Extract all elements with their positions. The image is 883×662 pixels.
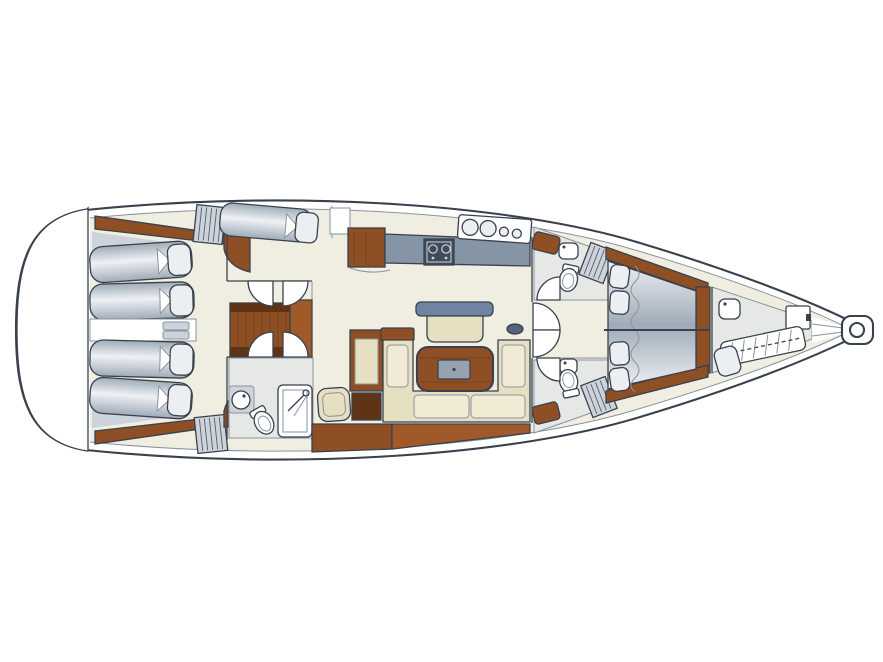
pillow xyxy=(167,384,192,417)
divider-locker xyxy=(163,331,189,339)
sink-icon xyxy=(462,219,479,236)
settee-cushion xyxy=(502,345,525,387)
divider-locker xyxy=(163,322,189,330)
pillow xyxy=(167,243,192,276)
transom-deck xyxy=(17,208,88,451)
settee-cushion xyxy=(414,395,469,418)
cabinet xyxy=(330,208,350,234)
pillow xyxy=(609,367,631,392)
sink-icon xyxy=(232,391,250,409)
berth xyxy=(89,240,193,283)
sink-icon xyxy=(559,243,578,259)
pillow xyxy=(170,285,194,317)
aft-head xyxy=(229,358,313,438)
settee-cushion xyxy=(387,345,408,387)
floor-plan-canvas xyxy=(0,0,883,662)
faucet-dot xyxy=(563,246,566,249)
sink-icon xyxy=(480,220,497,237)
nav-seat xyxy=(317,387,351,422)
base-cabinet xyxy=(312,424,392,452)
bench-seat xyxy=(427,316,483,342)
berth xyxy=(89,377,193,420)
pillow xyxy=(294,212,319,244)
transom-platform xyxy=(17,208,88,451)
settee-wood-cap xyxy=(381,328,414,341)
berth xyxy=(90,282,195,321)
sink-icon xyxy=(499,227,509,237)
grab-handle xyxy=(507,324,523,334)
chart-locker xyxy=(352,393,381,420)
anchor-locker xyxy=(812,316,873,344)
pillow xyxy=(609,341,630,365)
faucet-dot xyxy=(723,302,726,305)
table-dot xyxy=(452,368,455,371)
salon-table xyxy=(417,347,493,391)
settee-cushion xyxy=(471,395,525,418)
wardrobe xyxy=(194,415,228,454)
sink-icon xyxy=(512,229,522,239)
windlass-motor xyxy=(806,314,811,321)
pillow xyxy=(170,344,194,376)
bench-backrest xyxy=(416,302,493,316)
yacht-floor-plan xyxy=(0,0,883,662)
faucet-dot xyxy=(564,362,567,365)
pillow xyxy=(609,290,630,314)
stair-edge xyxy=(230,303,290,312)
pillow xyxy=(608,264,630,289)
stove-icon xyxy=(424,239,454,265)
bow-roller-icon xyxy=(850,323,864,337)
chart-table-top xyxy=(355,339,378,384)
faucet-dot xyxy=(242,394,245,397)
berth xyxy=(90,340,195,379)
sink-icon xyxy=(719,299,740,319)
galley-sinks xyxy=(457,215,531,244)
